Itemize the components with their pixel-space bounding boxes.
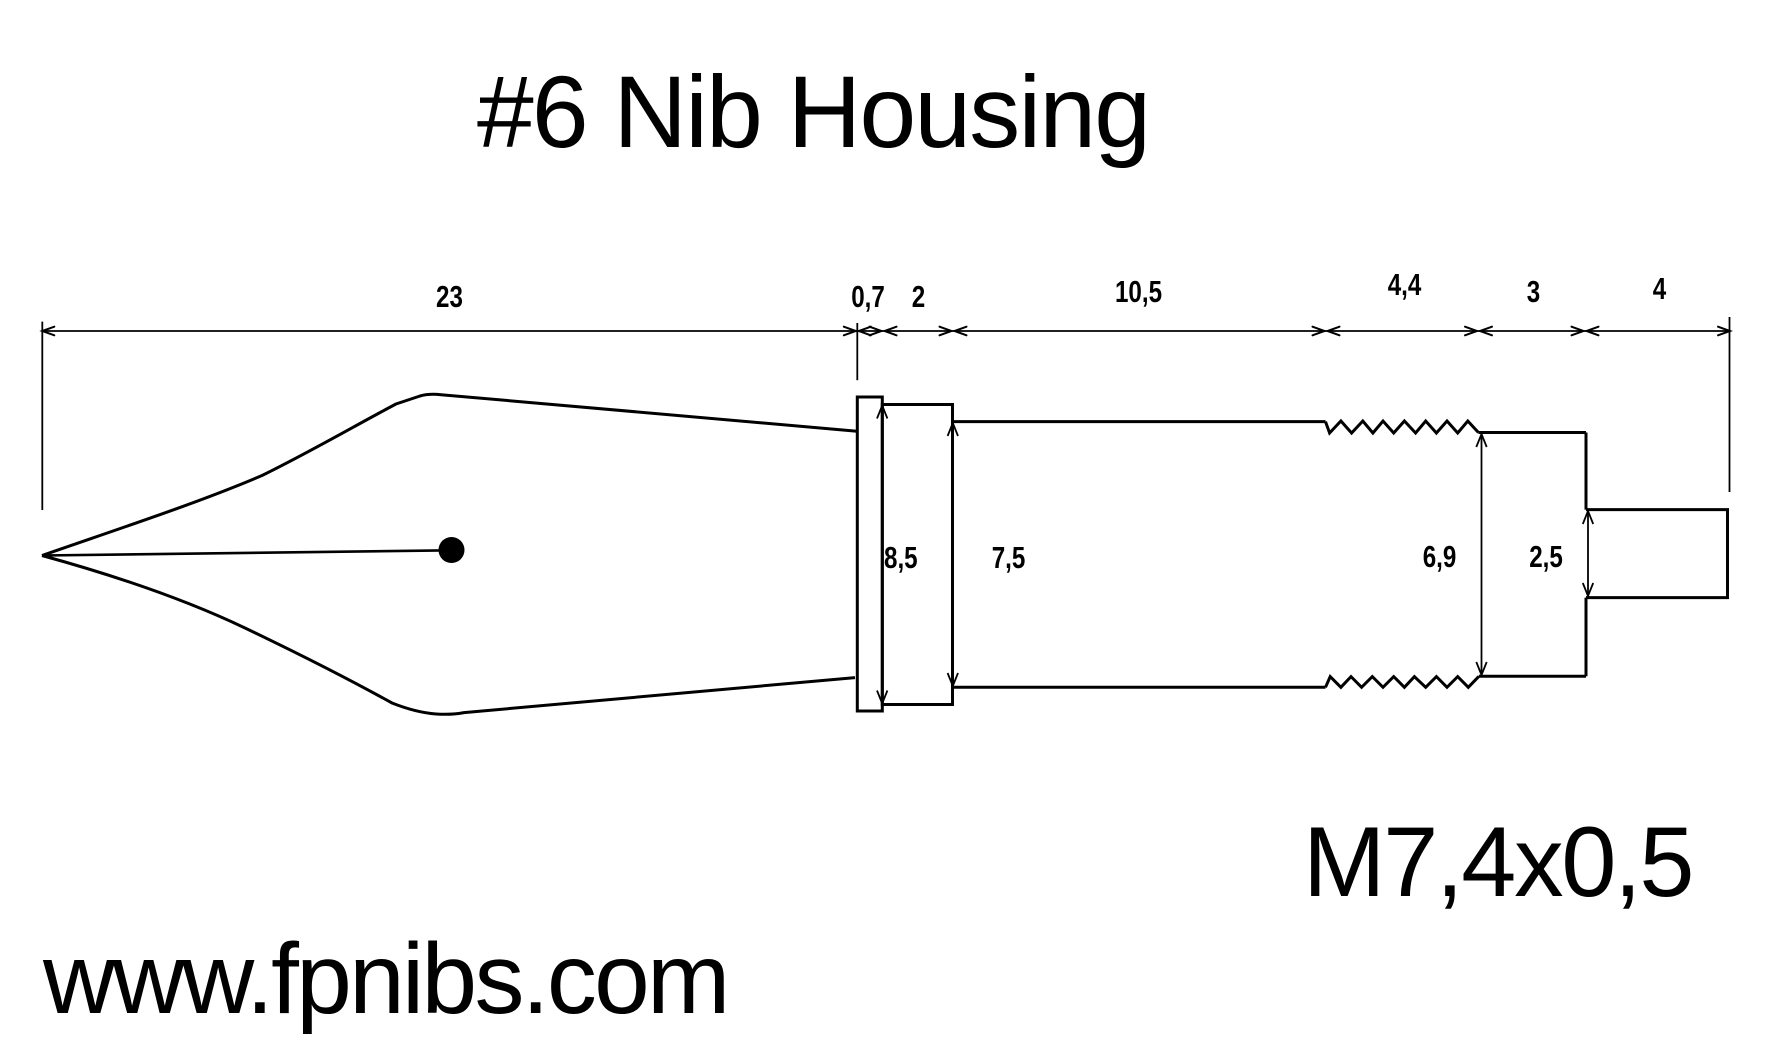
svg-text:7,5: 7,5 bbox=[992, 540, 1026, 575]
svg-text:2,5: 2,5 bbox=[1529, 539, 1563, 574]
svg-text:6,9: 6,9 bbox=[1423, 539, 1457, 574]
svg-text:23: 23 bbox=[436, 279, 463, 314]
svg-text:2: 2 bbox=[912, 279, 925, 314]
svg-text:#6 Nib Housing: #6 Nib Housing bbox=[477, 55, 1149, 169]
svg-text:4,4: 4,4 bbox=[1388, 267, 1422, 302]
svg-text:4: 4 bbox=[1653, 271, 1667, 306]
svg-text:0,7: 0,7 bbox=[851, 279, 885, 314]
svg-text:M7,4x0,5: M7,4x0,5 bbox=[1303, 806, 1692, 917]
svg-text:www.fpnibs.com: www.fpnibs.com bbox=[42, 923, 728, 1035]
svg-text:3: 3 bbox=[1527, 274, 1540, 309]
svg-text:10,5: 10,5 bbox=[1115, 274, 1162, 309]
svg-text:8,5: 8,5 bbox=[884, 540, 918, 575]
